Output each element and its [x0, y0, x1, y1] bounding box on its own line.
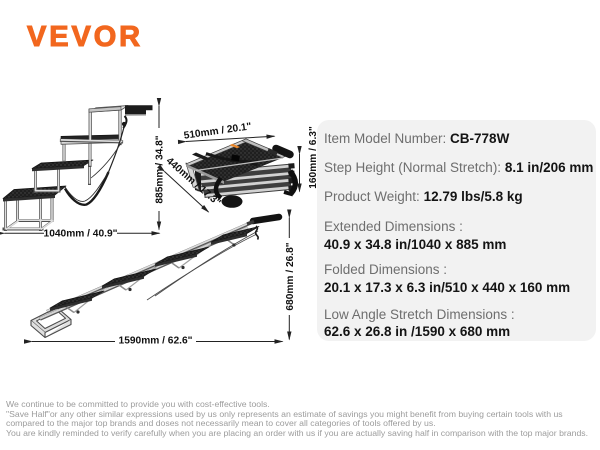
svg-text:1590mm / 62.6": 1590mm / 62.6" — [119, 336, 193, 347]
svg-text:885mm / 34.8": 885mm / 34.8" — [155, 135, 166, 203]
svg-text:510mm / 20.1": 510mm / 20.1" — [183, 121, 252, 141]
svg-text:1040mm / 40.9": 1040mm / 40.9" — [44, 228, 118, 239]
svg-text:680mm / 26.8": 680mm / 26.8" — [285, 242, 296, 310]
